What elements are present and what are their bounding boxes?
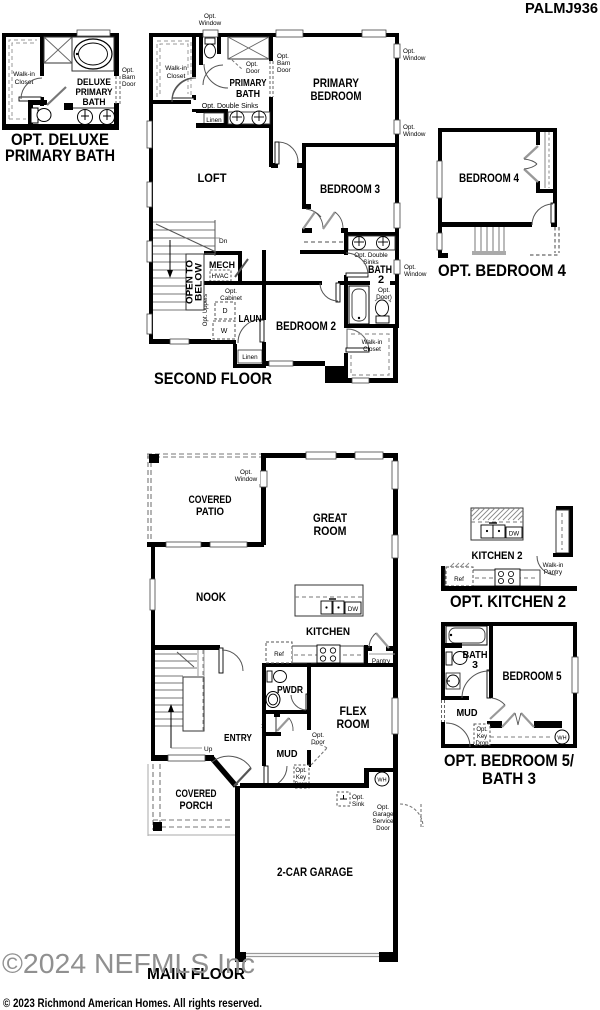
svg-text:3: 3 (472, 659, 478, 671)
svg-text:Window: Window (199, 20, 222, 27)
svg-text:Linen: Linen (206, 117, 222, 124)
svg-text:Walk-in: Walk-in (165, 65, 187, 72)
svg-text:BEDROOM 2: BEDROOM 2 (276, 319, 336, 333)
svg-text:Opt.: Opt. (246, 61, 258, 68)
svg-text:Linen: Linen (262, 714, 268, 729)
svg-text:Sink: Sink (352, 801, 365, 808)
svg-text:Dn: Dn (219, 238, 228, 245)
svg-text:Door: Door (376, 825, 390, 832)
svg-text:PWDR: PWDR (277, 684, 303, 696)
svg-text:Window: Window (404, 271, 427, 278)
svg-text:2-CAR GARAGE: 2-CAR GARAGE (277, 867, 353, 879)
svg-text:Walk-in: Walk-in (13, 71, 35, 78)
svg-text:Door: Door (122, 81, 136, 88)
svg-text:Closet: Closet (167, 73, 186, 80)
svg-text:Pantry: Pantry (372, 658, 391, 665)
svg-text:DW: DW (509, 531, 520, 538)
svg-text:SECOND FLOOR: SECOND FLOOR (154, 370, 272, 388)
svg-text:BEDROOM: BEDROOM (311, 89, 362, 103)
svg-text:Up: Up (204, 746, 213, 753)
svg-text:Closet: Closet (15, 79, 34, 86)
svg-text:Opt.: Opt. (403, 124, 415, 131)
svg-text:Opt.: Opt. (204, 13, 216, 20)
svg-text:OPT. BEDROOM 5/: OPT. BEDROOM 5/ (444, 752, 574, 770)
svg-text:NOOK: NOOK (196, 590, 226, 604)
svg-text:Walk-in: Walk-in (362, 339, 383, 346)
svg-text:Ref: Ref (274, 651, 284, 658)
svg-text:WH: WH (377, 778, 386, 784)
svg-text:Opt.: Opt. (312, 732, 324, 739)
svg-text:BEDROOM 3: BEDROOM 3 (320, 182, 380, 196)
svg-text:Opt.: Opt. (403, 48, 415, 55)
svg-text:PORCH: PORCH (180, 800, 213, 812)
svg-text:Opt.: Opt. (404, 264, 416, 271)
svg-text:Pantry: Pantry (544, 569, 563, 576)
svg-text:Cabinet: Cabinet (220, 295, 242, 302)
svg-text:Service: Service (373, 818, 394, 825)
svg-text:Drop: Drop (475, 741, 489, 747)
svg-text:Opt.: Opt. (122, 67, 134, 74)
svg-text:Opt. Double Sinks: Opt. Double Sinks (202, 103, 259, 110)
svg-text:PALMJ936: PALMJ936 (525, 0, 598, 17)
svg-text:Window: Window (235, 476, 258, 483)
svg-text:Opt.: Opt. (476, 727, 488, 733)
svg-text:HVAC: HVAC (211, 273, 228, 280)
svg-text:KITCHEN: KITCHEN (306, 626, 350, 638)
svg-text:BEDROOM 4: BEDROOM 4 (459, 173, 520, 185)
svg-text:Door: Door (311, 739, 325, 746)
svg-text:Walk-in: Walk-in (543, 562, 564, 569)
svg-text:MUD: MUD (277, 748, 298, 760)
svg-text:Closet: Closet (363, 346, 381, 353)
svg-text:Opt.: Opt. (295, 768, 307, 774)
svg-text:PRIMARY: PRIMARY (313, 76, 359, 90)
svg-text:ROOM: ROOM (314, 524, 347, 538)
svg-text:2: 2 (378, 274, 384, 286)
svg-text:ENTRY: ENTRY (224, 732, 252, 744)
svg-text:Opt.: Opt. (240, 469, 252, 476)
svg-text:OPT. BEDROOM 4: OPT. BEDROOM 4 (438, 262, 567, 280)
svg-text:ROOM: ROOM (337, 717, 370, 731)
svg-text:BATH: BATH (236, 88, 260, 100)
svg-text:OPT. KITCHEN 2: OPT. KITCHEN 2 (450, 593, 566, 611)
svg-text:DW: DW (348, 606, 359, 613)
svg-text:©2024 NEFMLS Inc: ©2024 NEFMLS Inc (2, 948, 255, 979)
svg-text:Key: Key (477, 734, 487, 740)
svg-text:Opt.: Opt. (277, 53, 289, 60)
svg-text:© 2023 Richmond American Homes: © 2023 Richmond American Homes. All righ… (3, 998, 262, 1010)
svg-text:D: D (222, 308, 227, 315)
svg-text:Ref: Ref (454, 576, 464, 583)
svg-text:COVERED: COVERED (176, 788, 217, 800)
svg-text:FLEX: FLEX (340, 704, 367, 718)
svg-text:BELOW: BELOW (194, 262, 204, 301)
svg-text:Window: Window (403, 55, 426, 62)
svg-text:Opt.: Opt. (352, 794, 364, 801)
svg-text:MUD: MUD (457, 707, 478, 719)
svg-text:LOFT: LOFT (198, 171, 228, 185)
svg-text:PATIO: PATIO (196, 506, 224, 518)
svg-text:Linen: Linen (242, 354, 258, 361)
svg-text:BATH: BATH (83, 97, 106, 108)
svg-text:PRIMARY BATH: PRIMARY BATH (5, 147, 115, 165)
svg-text:Opt.: Opt. (378, 287, 390, 294)
svg-text:Garage: Garage (372, 811, 394, 818)
svg-text:Opt.: Opt. (377, 804, 389, 811)
svg-text:BATH 3: BATH 3 (482, 770, 536, 788)
svg-text:BEDROOM 5: BEDROOM 5 (503, 671, 563, 683)
svg-text:LAUN: LAUN (239, 314, 262, 325)
svg-text:Door: Door (246, 68, 260, 75)
svg-text:Window: Window (403, 131, 426, 138)
svg-text:Opt.: Opt. (225, 288, 237, 295)
svg-text:KITCHEN 2: KITCHEN 2 (472, 550, 523, 562)
svg-text:Barn: Barn (277, 60, 291, 67)
svg-text:Key: Key (296, 775, 306, 781)
svg-text:MECH: MECH (209, 260, 235, 271)
svg-text:W: W (221, 328, 228, 335)
svg-text:Barn: Barn (122, 74, 136, 81)
svg-text:WH: WH (557, 736, 566, 742)
svg-text:Door: Door (277, 67, 291, 74)
svg-text:GREAT: GREAT (313, 511, 348, 525)
svg-text:COVERED: COVERED (189, 494, 232, 506)
